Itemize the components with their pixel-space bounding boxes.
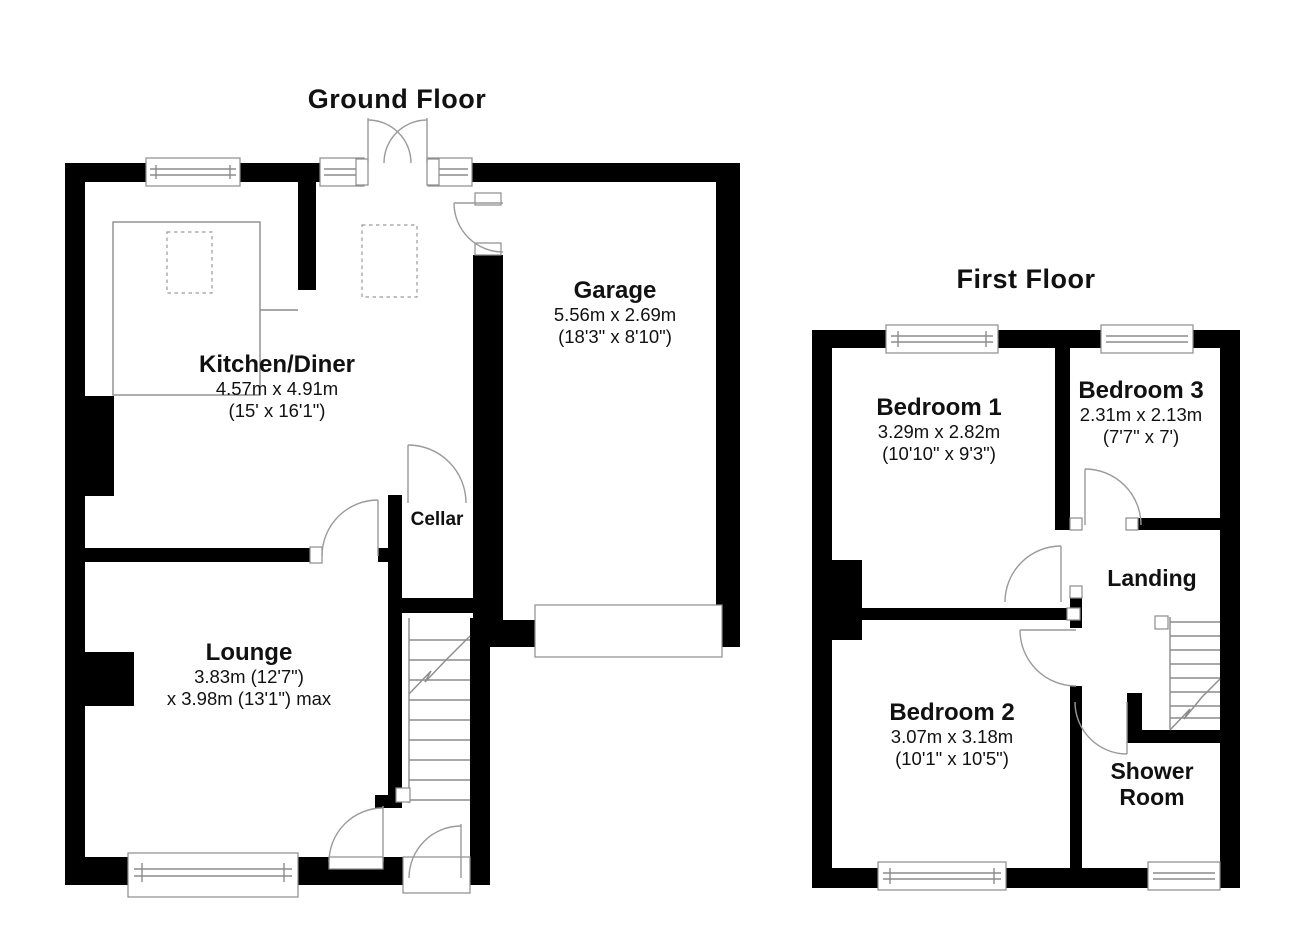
bedroom2-door-icon: [1020, 630, 1076, 686]
kitchen-dim-imperial: (15' x 16'1"): [199, 400, 355, 421]
ground-floor-stairs-icon: [396, 618, 470, 803]
lounge-dim-line2: x 3.98m (13'1") max: [167, 688, 331, 709]
shower-room-door-icon: [1075, 702, 1127, 754]
kitchen-window-icon: [146, 158, 240, 186]
shower-name-line2: Room: [1110, 784, 1193, 810]
garage-door-from-kitchen-icon: [454, 193, 503, 255]
room-label-bedroom1: Bedroom 1 3.29m x 2.82m (10'10" x 9'3"): [876, 395, 1001, 464]
room-label-landing: Landing: [1107, 565, 1196, 591]
bedroom3-name: Bedroom 3: [1078, 378, 1203, 404]
bedroom1-door-icon: [1005, 546, 1061, 602]
room-label-bedroom3: Bedroom 3 2.31m x 2.13m (7'7" x 7'): [1078, 378, 1203, 447]
lounge-chimney-pier: [84, 652, 134, 706]
lounge-bay-window-icon: [128, 853, 298, 897]
french-doors-icon: [356, 118, 439, 185]
bedroom2-dim-metric: 3.07m x 3.18m: [889, 726, 1014, 747]
room-label-lounge: Lounge 3.83m (12'7") x 3.98m (13'1") max: [167, 640, 331, 709]
kitchen-dim-metric: 4.57m x 4.91m: [199, 378, 355, 399]
shower-name-line1: Shower: [1110, 758, 1193, 784]
bedroom1-dim-metric: 3.29m x 2.82m: [876, 421, 1001, 442]
garage-vehicle-door-icon: [535, 605, 722, 657]
ground-floor-plan: [65, 118, 740, 897]
bedroom3-door-icon: [1085, 469, 1141, 525]
room-label-kitchen: Kitchen/Diner 4.57m x 4.91m (15' x 16'1"…: [199, 352, 355, 421]
kitchen-chimney-pier: [84, 396, 114, 496]
ground-floor-walls: [65, 163, 740, 885]
floorplan-page: Ground Floor Kitchen/Diner 4.57m x 4.91m…: [0, 0, 1300, 945]
island-unit-icon: [362, 225, 417, 297]
cellar-door-icon: [408, 445, 466, 503]
garage-dim-metric: 5.56m x 2.69m: [554, 304, 676, 325]
ground-floor-title: Ground Floor: [308, 84, 486, 115]
lounge-dim-line1: 3.83m (12'7"): [167, 666, 331, 687]
lounge-name: Lounge: [167, 640, 331, 666]
first-floor-title: First Floor: [957, 264, 1096, 295]
bedroom3-window-icon: [1101, 325, 1193, 353]
bedroom2-dim-imperial: (10'1" x 10'5"): [889, 748, 1014, 769]
appliance-icon: [167, 232, 212, 293]
garage-dim-imperial: (18'3" x 8'10"): [554, 326, 676, 347]
kitchen-name: Kitchen/Diner: [199, 352, 355, 378]
bedroom3-dim-imperial: (7'7" x 7'): [1078, 426, 1203, 447]
bedroom-chimney-pier: [812, 560, 862, 640]
floorplan-drawing: [0, 0, 1300, 945]
garage-name: Garage: [554, 278, 676, 304]
lounge-hall-door-icon: [329, 806, 383, 869]
bedroom1-name: Bedroom 1: [876, 395, 1001, 421]
shower-room-window-icon: [1148, 862, 1220, 890]
room-label-cellar: Cellar: [411, 510, 464, 531]
room-label-shower: Shower Room: [1110, 758, 1193, 810]
kitchen-lounge-door-icon: [310, 500, 378, 563]
bedroom2-name: Bedroom 2: [889, 700, 1014, 726]
first-floor-stairs-icon: [1155, 616, 1220, 730]
front-door-icon: [403, 824, 470, 893]
room-label-garage: Garage 5.56m x 2.69m (18'3" x 8'10"): [554, 278, 676, 347]
bedroom2-window-icon: [878, 862, 1006, 890]
bedroom1-dim-imperial: (10'10" x 9'3"): [876, 443, 1001, 464]
room-label-bedroom2: Bedroom 2 3.07m x 3.18m (10'1" x 10'5"): [889, 700, 1014, 769]
bedroom1-window-icon: [886, 325, 998, 353]
bedroom3-dim-metric: 2.31m x 2.13m: [1078, 404, 1203, 425]
